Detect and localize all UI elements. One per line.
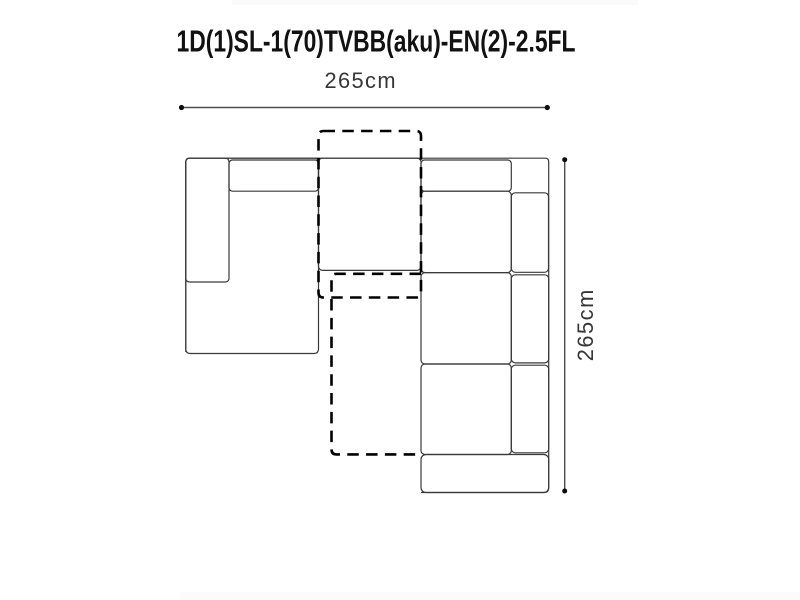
svg-text:265cm: 265cm <box>325 68 396 93</box>
svg-text:1D(1)SL-1(70)TVBB(aku)-EN(2)-2: 1D(1)SL-1(70)TVBB(aku)-EN(2)-2.5FL <box>177 25 576 59</box>
svg-text:265cm: 265cm <box>573 290 598 362</box>
